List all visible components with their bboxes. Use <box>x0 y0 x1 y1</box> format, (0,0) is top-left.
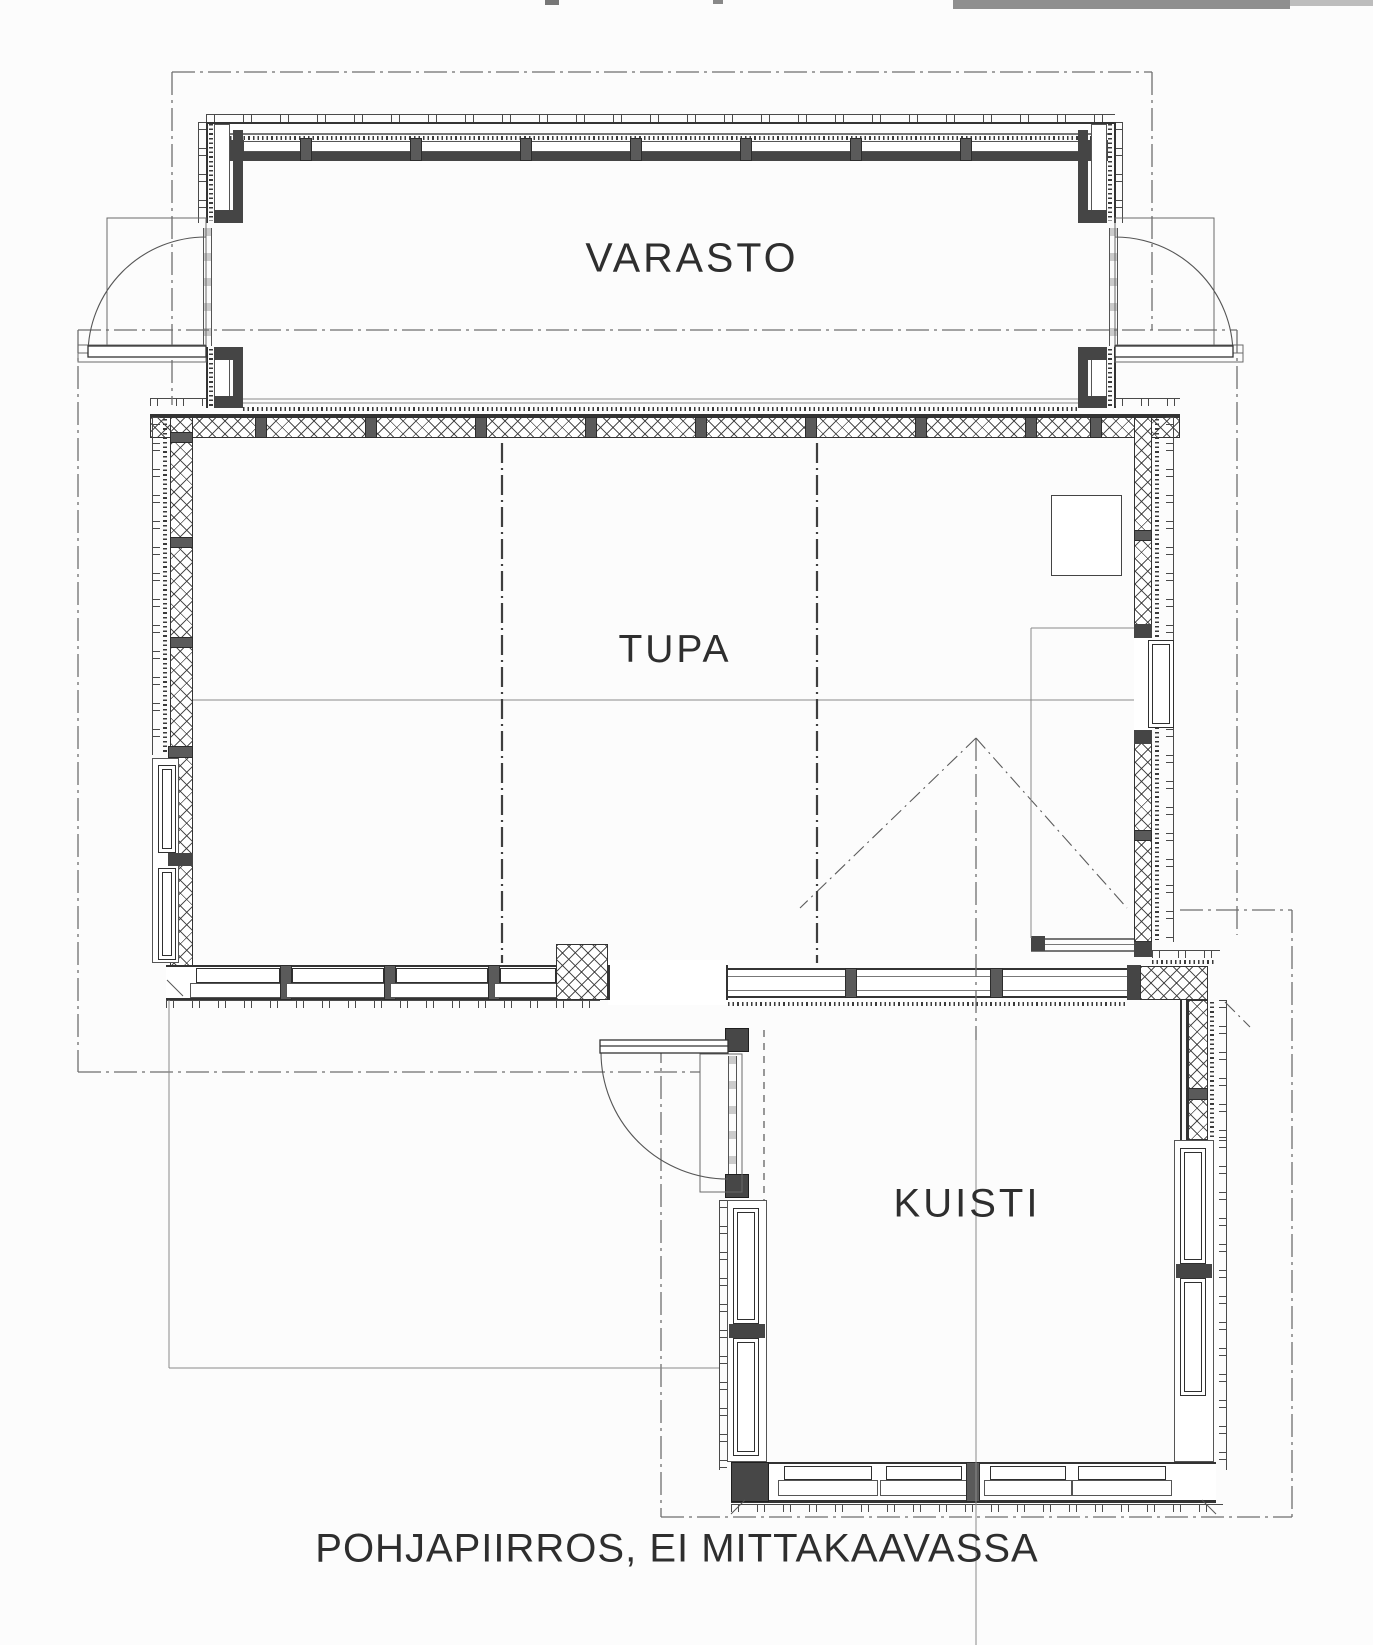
east-wall-hatch <box>1188 1000 1208 1140</box>
window-post <box>384 965 396 1000</box>
corner-block <box>1078 347 1107 360</box>
ridge-line-right <box>976 738 1127 908</box>
corner-tick <box>731 1500 745 1514</box>
window-sill <box>494 983 562 998</box>
ceiling-beam-lines <box>502 443 817 963</box>
window <box>1180 1148 1206 1264</box>
ridge-line-left <box>800 738 976 908</box>
window-divider <box>729 1324 765 1338</box>
door-jamb <box>608 965 610 1000</box>
window <box>784 1466 872 1480</box>
log-ends-row <box>206 114 1115 122</box>
log-ends-col <box>1166 417 1174 942</box>
wall-slot <box>214 124 230 221</box>
insulation-bead <box>216 136 1106 140</box>
door-opening-posts <box>203 228 212 346</box>
wall-inner-face <box>1078 353 1088 408</box>
wall-stud <box>168 746 193 758</box>
wall-stud <box>805 417 817 438</box>
center-post <box>966 1462 980 1502</box>
south-wall-body <box>728 970 1140 996</box>
door-hinge-post <box>725 1174 749 1198</box>
window-band-frame <box>727 1200 767 1462</box>
log-ends-col <box>152 417 160 755</box>
wall-stud <box>695 417 707 438</box>
south-wall-body <box>731 1464 1216 1500</box>
alcove-line <box>1031 938 1134 940</box>
wall-outer-line <box>206 122 1115 124</box>
corner-block <box>214 210 243 223</box>
room-label-kuisti: KUISTI <box>894 1182 1041 1227</box>
door-swing-arcs <box>88 237 1233 1179</box>
log-ends-col <box>1219 1000 1227 1140</box>
window <box>1148 640 1174 728</box>
door-opening-posts <box>1109 228 1118 346</box>
wall-stud <box>365 417 377 438</box>
wall-inner-line <box>728 996 1140 998</box>
insulation-bead <box>1210 1002 1214 1140</box>
insulation-bead <box>1152 960 1214 964</box>
window <box>158 765 176 853</box>
floor-plan-canvas: VARASTO TUPA KUISTI POHJAPIIRROS, EI MIT… <box>0 0 1373 1645</box>
chimney <box>1051 495 1122 576</box>
log-ends-row <box>731 1504 1223 1512</box>
roof-ridge-lines <box>800 738 1250 1027</box>
window-post <box>845 968 857 998</box>
window <box>396 968 488 983</box>
wall-stud <box>740 138 752 161</box>
window-sill <box>190 983 286 998</box>
insulation-bead <box>1108 349 1112 408</box>
window-band-frame <box>152 758 179 963</box>
door-arc-east <box>1115 237 1233 355</box>
window <box>158 868 176 960</box>
corner-block <box>1078 140 1108 161</box>
window <box>733 1208 759 1324</box>
window-sill <box>880 1480 968 1496</box>
door-landings <box>78 345 1243 362</box>
door-jamb-hatch <box>556 944 608 1000</box>
corner-post <box>731 1462 769 1502</box>
wall-stud <box>1134 830 1152 841</box>
wall-stud <box>960 138 972 161</box>
door-jamb <box>726 965 728 1000</box>
window-sill <box>286 983 390 998</box>
insulation-bead <box>1155 419 1159 940</box>
corner-post <box>166 965 196 1000</box>
window-inner <box>162 769 172 849</box>
wall-stud <box>630 138 642 161</box>
wall-outer-line <box>731 1462 1216 1464</box>
wall-jamb-block <box>1127 965 1141 1000</box>
window-inner <box>1152 644 1170 724</box>
log-ends-row <box>1152 950 1220 958</box>
wall-slot <box>1091 349 1107 408</box>
corner-post <box>731 1462 769 1502</box>
corner-block <box>1078 396 1107 408</box>
drawing-caption: POHJAPIIRROS, EI MITTAKAAVASSA <box>315 1527 1038 1572</box>
alcove-end-block <box>1031 936 1045 951</box>
window-inner <box>1184 1152 1202 1260</box>
door-leaves <box>88 346 1233 1053</box>
window <box>500 968 556 983</box>
window-post <box>990 968 1003 998</box>
wall-inner-line <box>731 1500 1216 1503</box>
open-wall-posts <box>728 1056 737 1174</box>
insulation-bead <box>209 124 213 221</box>
scanner-speck <box>545 0 559 5</box>
corner-ticks <box>167 980 1216 1514</box>
window-jamb <box>1134 730 1152 744</box>
log-ends-row <box>1115 398 1180 406</box>
corner-post <box>1178 1462 1216 1502</box>
wall-outer-line <box>1114 122 1116 223</box>
wall-slot <box>214 141 1108 152</box>
wall-inner-face <box>1078 130 1088 223</box>
log-ends-col <box>1115 122 1123 223</box>
window-band-frame <box>1174 1140 1214 1462</box>
wall-stud <box>1134 530 1152 541</box>
wall-outer-line <box>1114 347 1116 408</box>
window-inner <box>737 1212 755 1320</box>
wall-inner-line <box>1180 1000 1182 1140</box>
room-label-varasto: VARASTO <box>585 235 798 282</box>
corner-block <box>214 396 243 408</box>
window-inner <box>737 1342 755 1452</box>
south-wall-body <box>166 967 608 998</box>
alcove-line <box>1031 944 1134 945</box>
door-hinge-post <box>725 1028 749 1052</box>
door-arc-porch <box>601 1052 728 1179</box>
doorway-opening <box>608 960 728 1005</box>
wall-inner-face <box>233 353 243 408</box>
room-label-tupa: TUPA <box>618 628 731 672</box>
insulation-bead <box>728 1002 1128 1006</box>
valley-tick <box>1225 1002 1250 1027</box>
door-leaf <box>88 346 206 357</box>
wall-stud <box>170 637 193 648</box>
wall-stud <box>520 138 532 161</box>
wall-line <box>214 133 1108 135</box>
log-ends-row <box>150 398 206 406</box>
wall-outer-line <box>166 965 608 967</box>
corner-block <box>214 347 243 360</box>
door-swing-box <box>700 1054 742 1192</box>
wall-inner-face <box>214 152 1108 161</box>
window-post <box>280 965 292 1000</box>
wall-inner-line <box>166 998 608 1000</box>
door-swing-box <box>107 218 206 355</box>
insulation-bead <box>209 349 213 408</box>
insulation-bead <box>243 407 1078 411</box>
corner-block <box>214 140 244 161</box>
eaves-chain-lines <box>78 72 1292 1517</box>
window-sill <box>390 983 494 998</box>
wall-stud <box>170 432 193 443</box>
insulation-bead <box>163 419 167 753</box>
door-swing-boxes <box>107 218 1214 1192</box>
door-arc-west <box>88 237 206 355</box>
corner-tick <box>167 980 183 996</box>
wall-slot <box>1091 124 1107 221</box>
north-wall-hatch <box>150 417 1180 438</box>
door-swing-box <box>1115 218 1214 355</box>
window-divider <box>168 853 193 866</box>
reference-lines <box>169 399 1134 1645</box>
wall-stud <box>1090 417 1102 438</box>
wall-stud <box>915 417 927 438</box>
wall-stud <box>1025 417 1037 438</box>
window-inner <box>162 872 172 956</box>
wall-outer-line <box>150 414 1180 417</box>
corner-tick <box>1202 1500 1216 1514</box>
wall-stud <box>475 417 487 438</box>
log-ends-col <box>1219 1140 1227 1470</box>
window <box>886 1466 962 1480</box>
alcove-line <box>1031 950 1134 952</box>
wall-inner-line <box>1186 1000 1188 1140</box>
east-wall-hatch <box>1134 417 1152 942</box>
wall-outer-line <box>728 968 1140 970</box>
glazing-line <box>728 976 1140 977</box>
wall-inner-face <box>233 130 243 223</box>
wall-slot <box>214 349 230 408</box>
window <box>196 968 280 983</box>
window-sill <box>984 1480 1072 1496</box>
window-inner <box>1184 1282 1202 1392</box>
window-sill <box>1072 1480 1172 1496</box>
wall-stud <box>850 138 862 161</box>
wall-stud <box>170 537 193 548</box>
wall-stud <box>410 138 422 161</box>
window <box>990 1466 1066 1480</box>
window <box>1078 1466 1166 1480</box>
window <box>1180 1278 1206 1396</box>
wall-outer-line <box>206 122 208 223</box>
log-ends-col <box>719 1200 727 1470</box>
log-ends-col <box>198 122 206 223</box>
wall-stud <box>300 138 312 161</box>
window-divider <box>1176 1264 1212 1278</box>
window-post <box>488 965 500 1000</box>
scanner-strip-light <box>1290 0 1373 6</box>
scanner-speck <box>713 0 723 4</box>
window-opening <box>1134 630 1152 738</box>
wall-stud <box>255 417 267 438</box>
scanner-strip <box>953 0 1290 9</box>
window <box>733 1338 759 1456</box>
door-landing <box>1115 345 1243 362</box>
wall-stud <box>1188 1088 1208 1100</box>
wall-outer-line <box>206 347 208 408</box>
door-leaf <box>600 1040 728 1053</box>
corner-block <box>1078 210 1107 223</box>
window-sill <box>778 1480 878 1496</box>
log-ends-row <box>166 1000 600 1008</box>
west-wall-hatch <box>170 417 193 1000</box>
window <box>292 968 384 983</box>
glazing-line <box>728 990 1140 991</box>
wall-end-cap <box>1134 942 1152 957</box>
door-leaf <box>1115 346 1233 357</box>
insulation-bead <box>1108 124 1112 221</box>
wall-cap <box>556 944 608 952</box>
jog-wall-hatch <box>1140 966 1208 1000</box>
wall-stud <box>585 417 597 438</box>
window-jamb <box>1134 624 1152 638</box>
door-landing <box>78 345 206 362</box>
